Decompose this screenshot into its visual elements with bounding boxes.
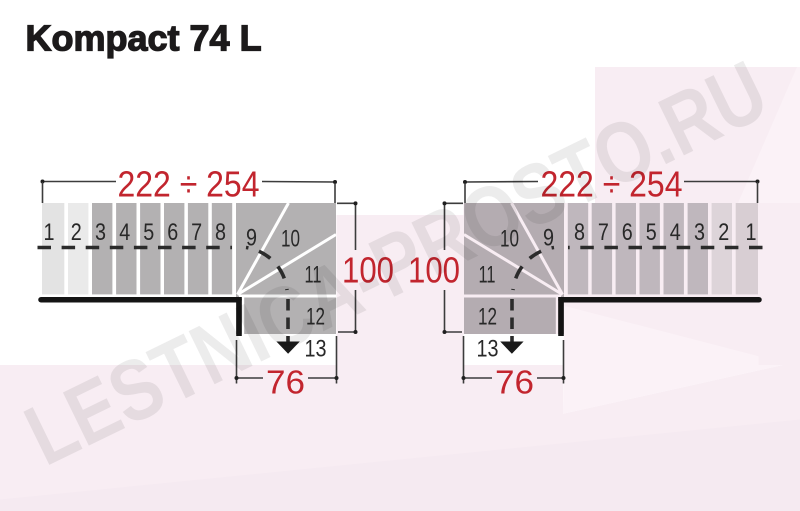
svg-text:222 ÷ 254: 222 ÷ 254: [118, 164, 260, 205]
svg-text:3: 3: [694, 219, 705, 246]
svg-text:76: 76: [495, 364, 534, 401]
svg-text:6: 6: [622, 219, 633, 246]
svg-text:2: 2: [718, 219, 729, 246]
svg-text:Kompact 74 L: Kompact 74 L: [26, 18, 262, 59]
svg-text:1: 1: [44, 219, 55, 246]
svg-text:7: 7: [191, 219, 202, 246]
svg-text:4: 4: [670, 219, 681, 246]
svg-text:7: 7: [598, 219, 609, 246]
svg-text:9: 9: [246, 225, 257, 252]
svg-text:5: 5: [646, 219, 657, 246]
svg-text:12: 12: [478, 304, 497, 331]
svg-text:2: 2: [71, 219, 82, 246]
svg-text:4: 4: [119, 219, 130, 246]
svg-text:6: 6: [167, 219, 178, 246]
svg-text:3: 3: [95, 219, 106, 246]
svg-text:1: 1: [746, 219, 757, 246]
svg-text:8: 8: [215, 219, 226, 246]
svg-text:13: 13: [477, 336, 499, 363]
svg-text:5: 5: [143, 219, 154, 246]
svg-text:10: 10: [281, 226, 300, 253]
